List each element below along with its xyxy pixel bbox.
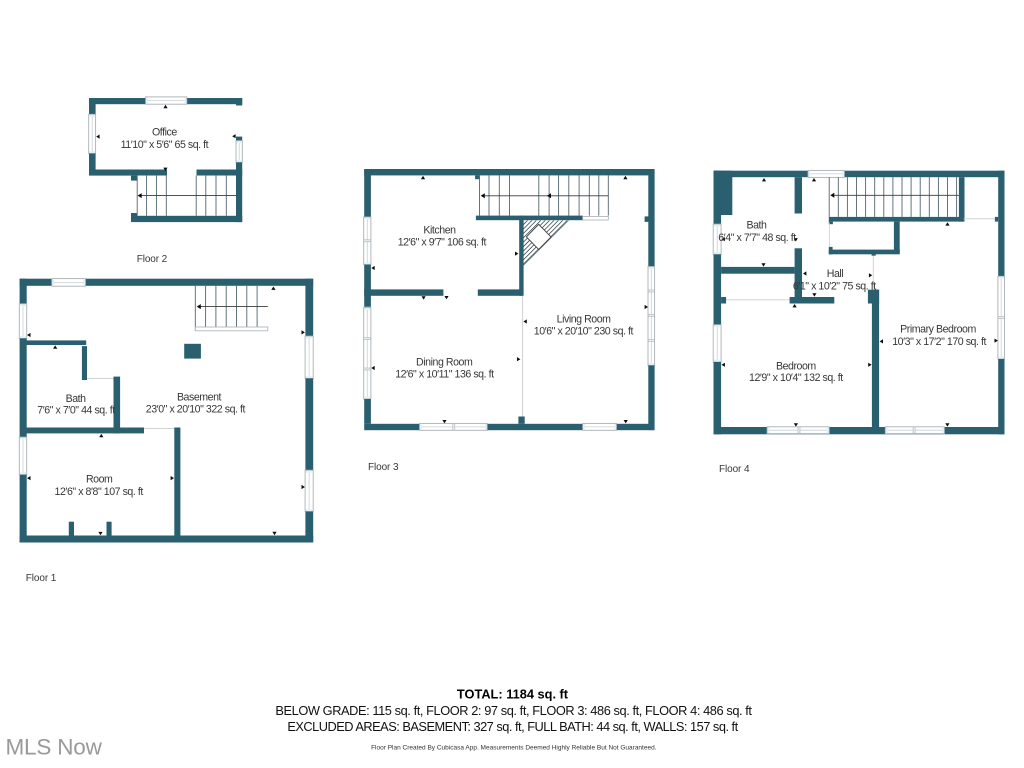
svg-text:Bedroom: Bedroom — [776, 360, 816, 372]
svg-text:EXCLUDED AREAS: BASEMENT: 327: EXCLUDED AREAS: BASEMENT: 327 sq. ft, FU… — [287, 719, 738, 734]
svg-text:Basement: Basement — [177, 391, 222, 403]
svg-text:Hall: Hall — [827, 268, 844, 280]
svg-text:10′3" x 17′2" 170 sq. ft: 10′3" x 17′2" 170 sq. ft — [892, 336, 986, 348]
svg-text:Primary Bedroom: Primary Bedroom — [900, 323, 976, 335]
svg-text:Floor Plan Created By Cubicasa: Floor Plan Created By Cubicasa App. Meas… — [371, 745, 657, 752]
svg-text:6′4" x 7′7" 48 sq. ft: 6′4" x 7′7" 48 sq. ft — [718, 232, 796, 244]
svg-text:Dining Room: Dining Room — [416, 357, 473, 369]
svg-text:Room: Room — [86, 473, 113, 485]
svg-text:Floor 3: Floor 3 — [368, 462, 399, 473]
svg-text:Floor 1: Floor 1 — [26, 573, 57, 584]
svg-text:10′6" x 20′10" 230 sq. ft: 10′6" x 20′10" 230 sq. ft — [534, 326, 634, 338]
svg-text:12′9" x 10′4" 132 sq. ft: 12′9" x 10′4" 132 sq. ft — [749, 372, 843, 384]
svg-text:BELOW GRADE: 115 sq. ft, FLOOR: BELOW GRADE: 115 sq. ft, FLOOR 2: 97 sq.… — [275, 703, 752, 718]
svg-text:23′0" x 20′10" 322 sq. ft: 23′0" x 20′10" 322 sq. ft — [146, 403, 246, 415]
svg-text:Bath: Bath — [747, 220, 768, 232]
svg-text:Office: Office — [152, 126, 177, 138]
svg-text:12′6" x 9′7" 106 sq. ft: 12′6" x 9′7" 106 sq. ft — [398, 237, 487, 249]
svg-text:MLS Now: MLS Now — [6, 735, 103, 760]
svg-text:Bath: Bath — [66, 393, 87, 405]
svg-text:12′6" x 10′11" 136 sq. ft: 12′6" x 10′11" 136 sq. ft — [395, 368, 494, 380]
svg-text:Floor 2: Floor 2 — [137, 254, 168, 265]
svg-text:6′1" x 10′2" 75 sq. ft: 6′1" x 10′2" 75 sq. ft — [793, 281, 876, 293]
svg-text:Kitchen: Kitchen — [423, 224, 456, 236]
svg-text:TOTAL: 1184 sq. ft: TOTAL: 1184 sq. ft — [457, 687, 569, 702]
svg-text:Floor 4: Floor 4 — [719, 464, 750, 475]
svg-text:Living Room: Living Room — [557, 313, 612, 325]
svg-text:12′6" x 8′8" 107 sq. ft: 12′6" x 8′8" 107 sq. ft — [55, 486, 144, 498]
svg-text:11′10" x 5′6" 65 sq. ft: 11′10" x 5′6" 65 sq. ft — [121, 139, 209, 151]
svg-text:7′6" x 7′0" 44 sq. ft: 7′6" x 7′0" 44 sq. ft — [37, 405, 115, 417]
